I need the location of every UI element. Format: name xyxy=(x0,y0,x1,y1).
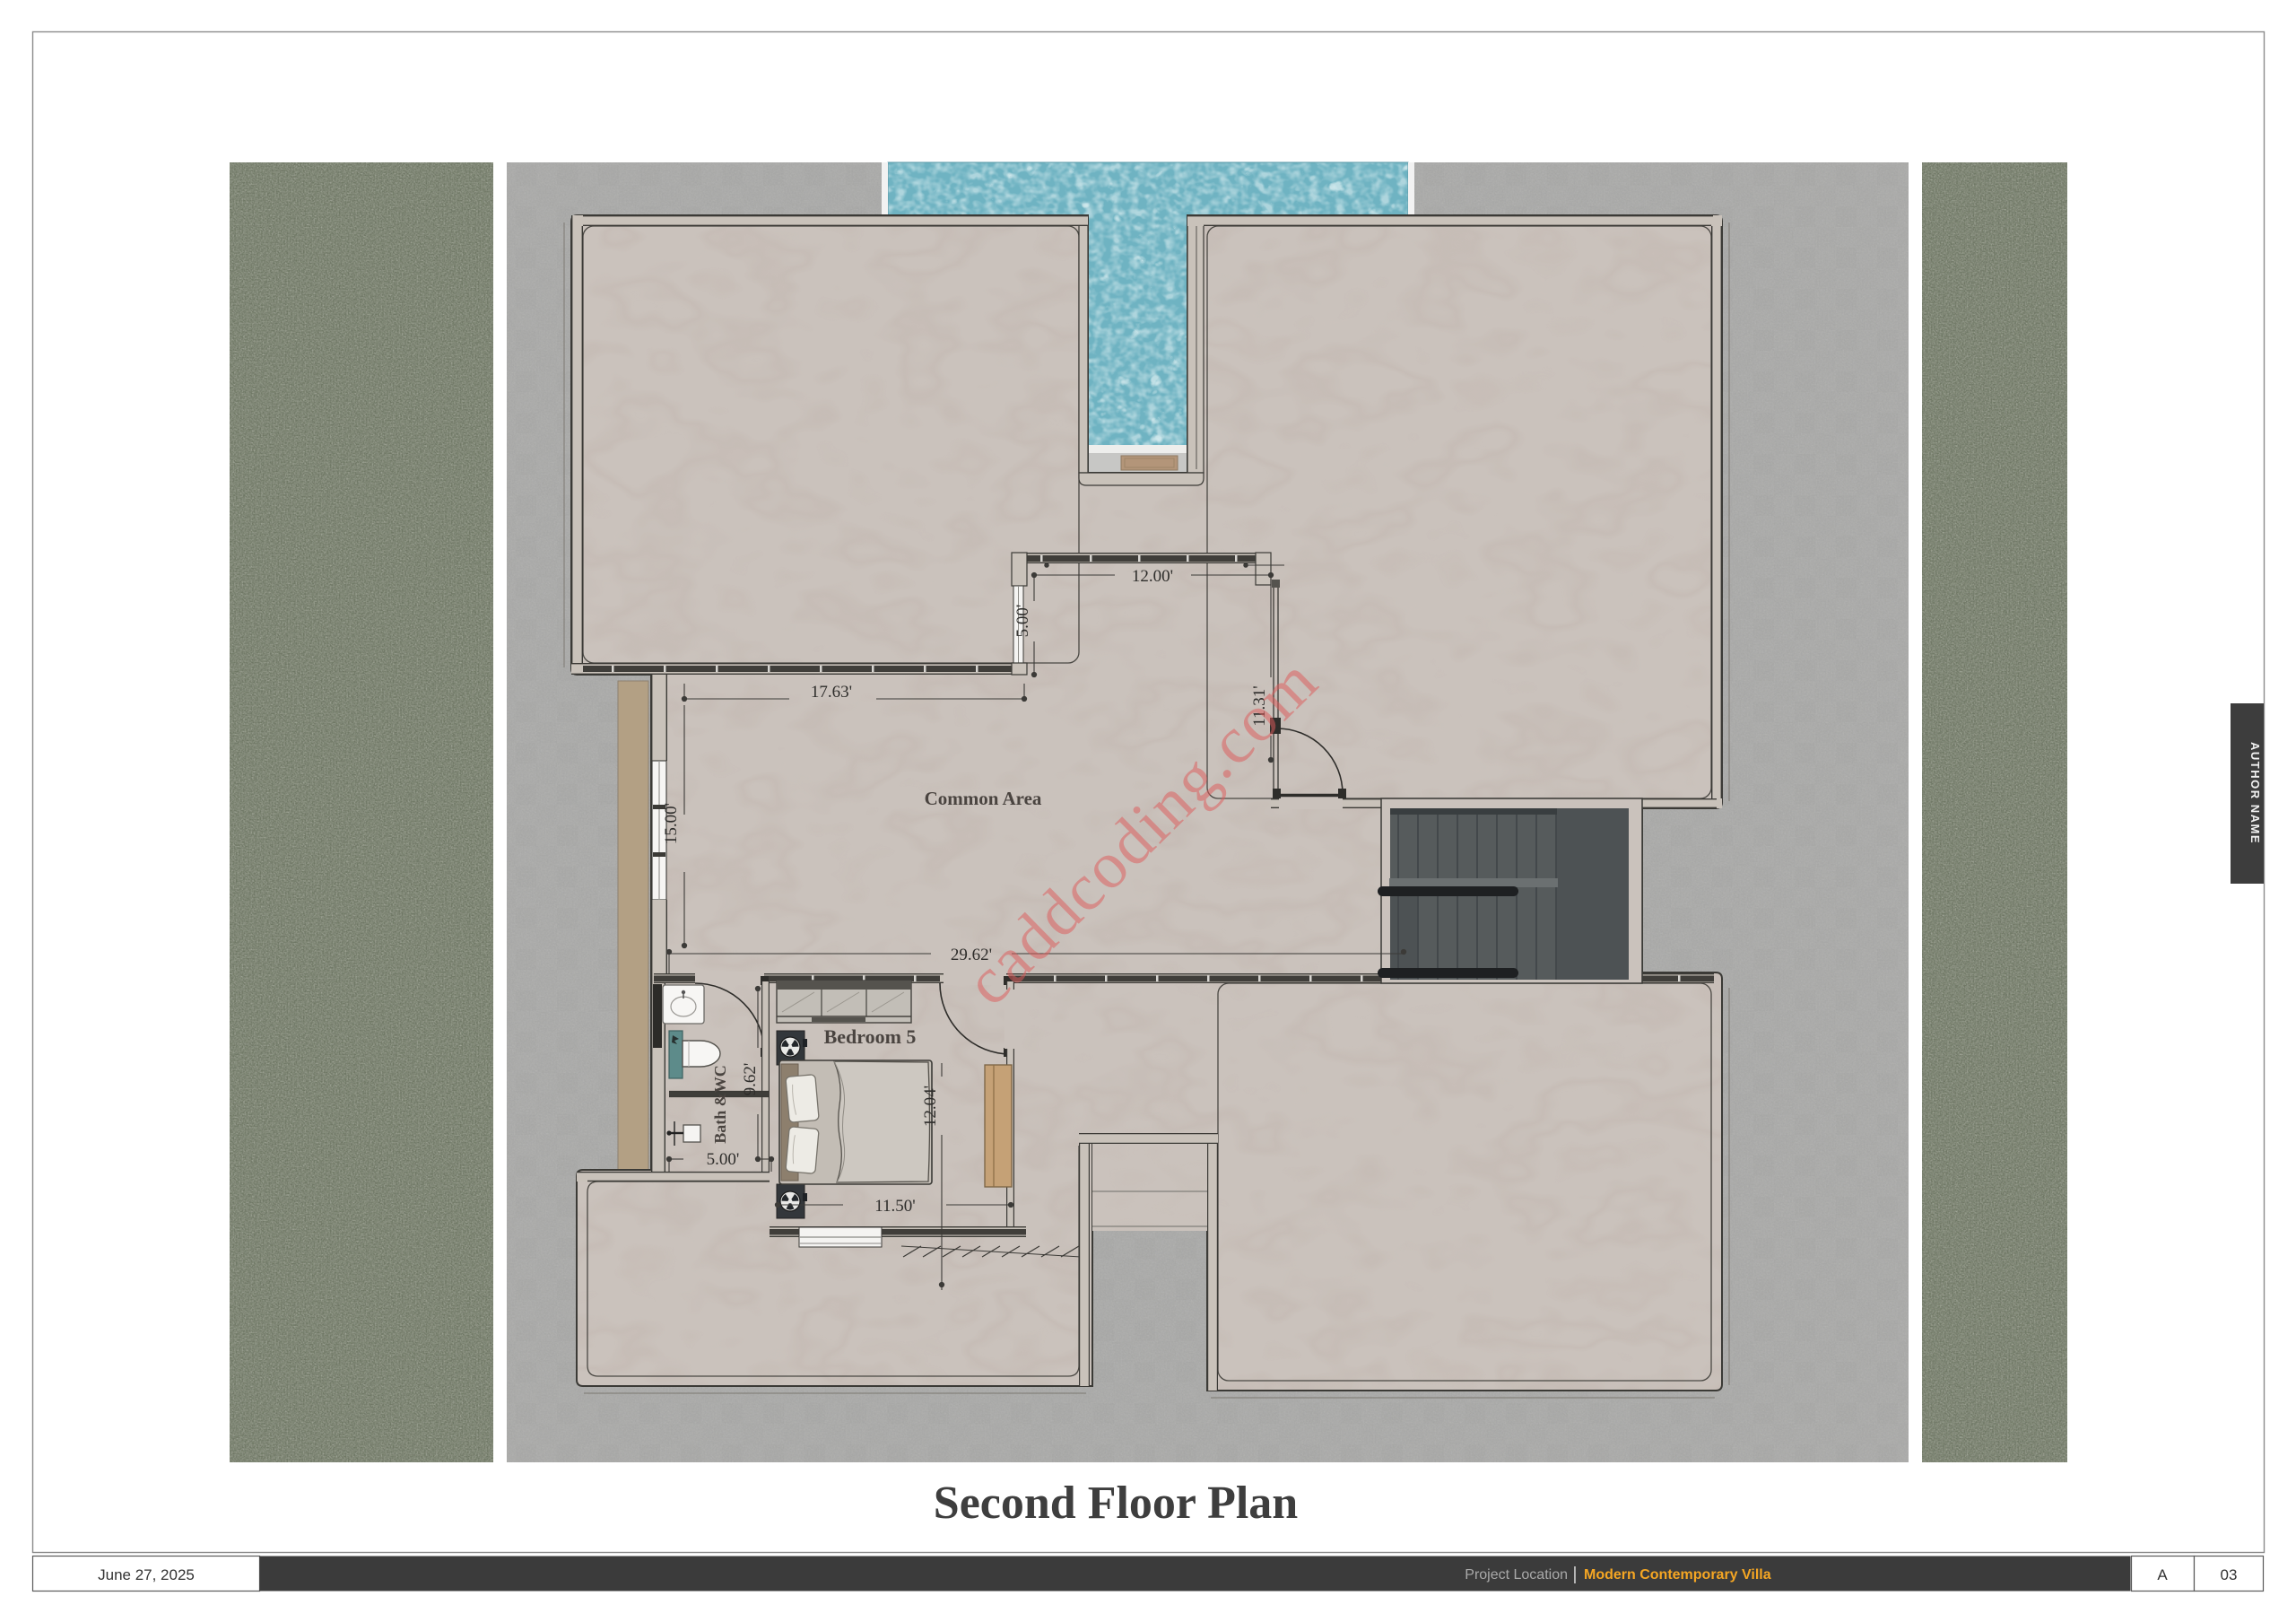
svg-text:Project Location: Project Location xyxy=(1465,1567,1568,1583)
svg-text:Bath &WC: Bath &WC xyxy=(711,1065,729,1144)
svg-text:Second Floor Plan: Second Floor Plan xyxy=(934,1478,1298,1529)
svg-text:Modern Contemporary Villa: Modern Contemporary Villa xyxy=(1584,1567,1771,1583)
svg-text:17.63': 17.63' xyxy=(811,683,852,702)
svg-text:June 27, 2025: June 27, 2025 xyxy=(98,1566,195,1583)
svg-text:11.50': 11.50' xyxy=(874,1197,915,1216)
svg-text:15.00': 15.00' xyxy=(662,803,681,844)
svg-text:12.04': 12.04' xyxy=(921,1086,940,1127)
svg-text:9.62': 9.62' xyxy=(741,1063,760,1096)
svg-text:Common Area: Common Area xyxy=(925,788,1042,809)
svg-text:|: | xyxy=(1572,1565,1577,1584)
svg-text:A: A xyxy=(2157,1566,2168,1583)
svg-text:Bedroom 5: Bedroom 5 xyxy=(824,1025,917,1048)
svg-text:5.00': 5.00' xyxy=(707,1150,740,1169)
svg-text:5.00': 5.00' xyxy=(1013,605,1032,638)
svg-text:03: 03 xyxy=(2221,1566,2238,1583)
svg-text:12.00': 12.00' xyxy=(1132,567,1173,586)
svg-text:AUTHOR NAME: AUTHOR NAME xyxy=(2248,742,2262,844)
